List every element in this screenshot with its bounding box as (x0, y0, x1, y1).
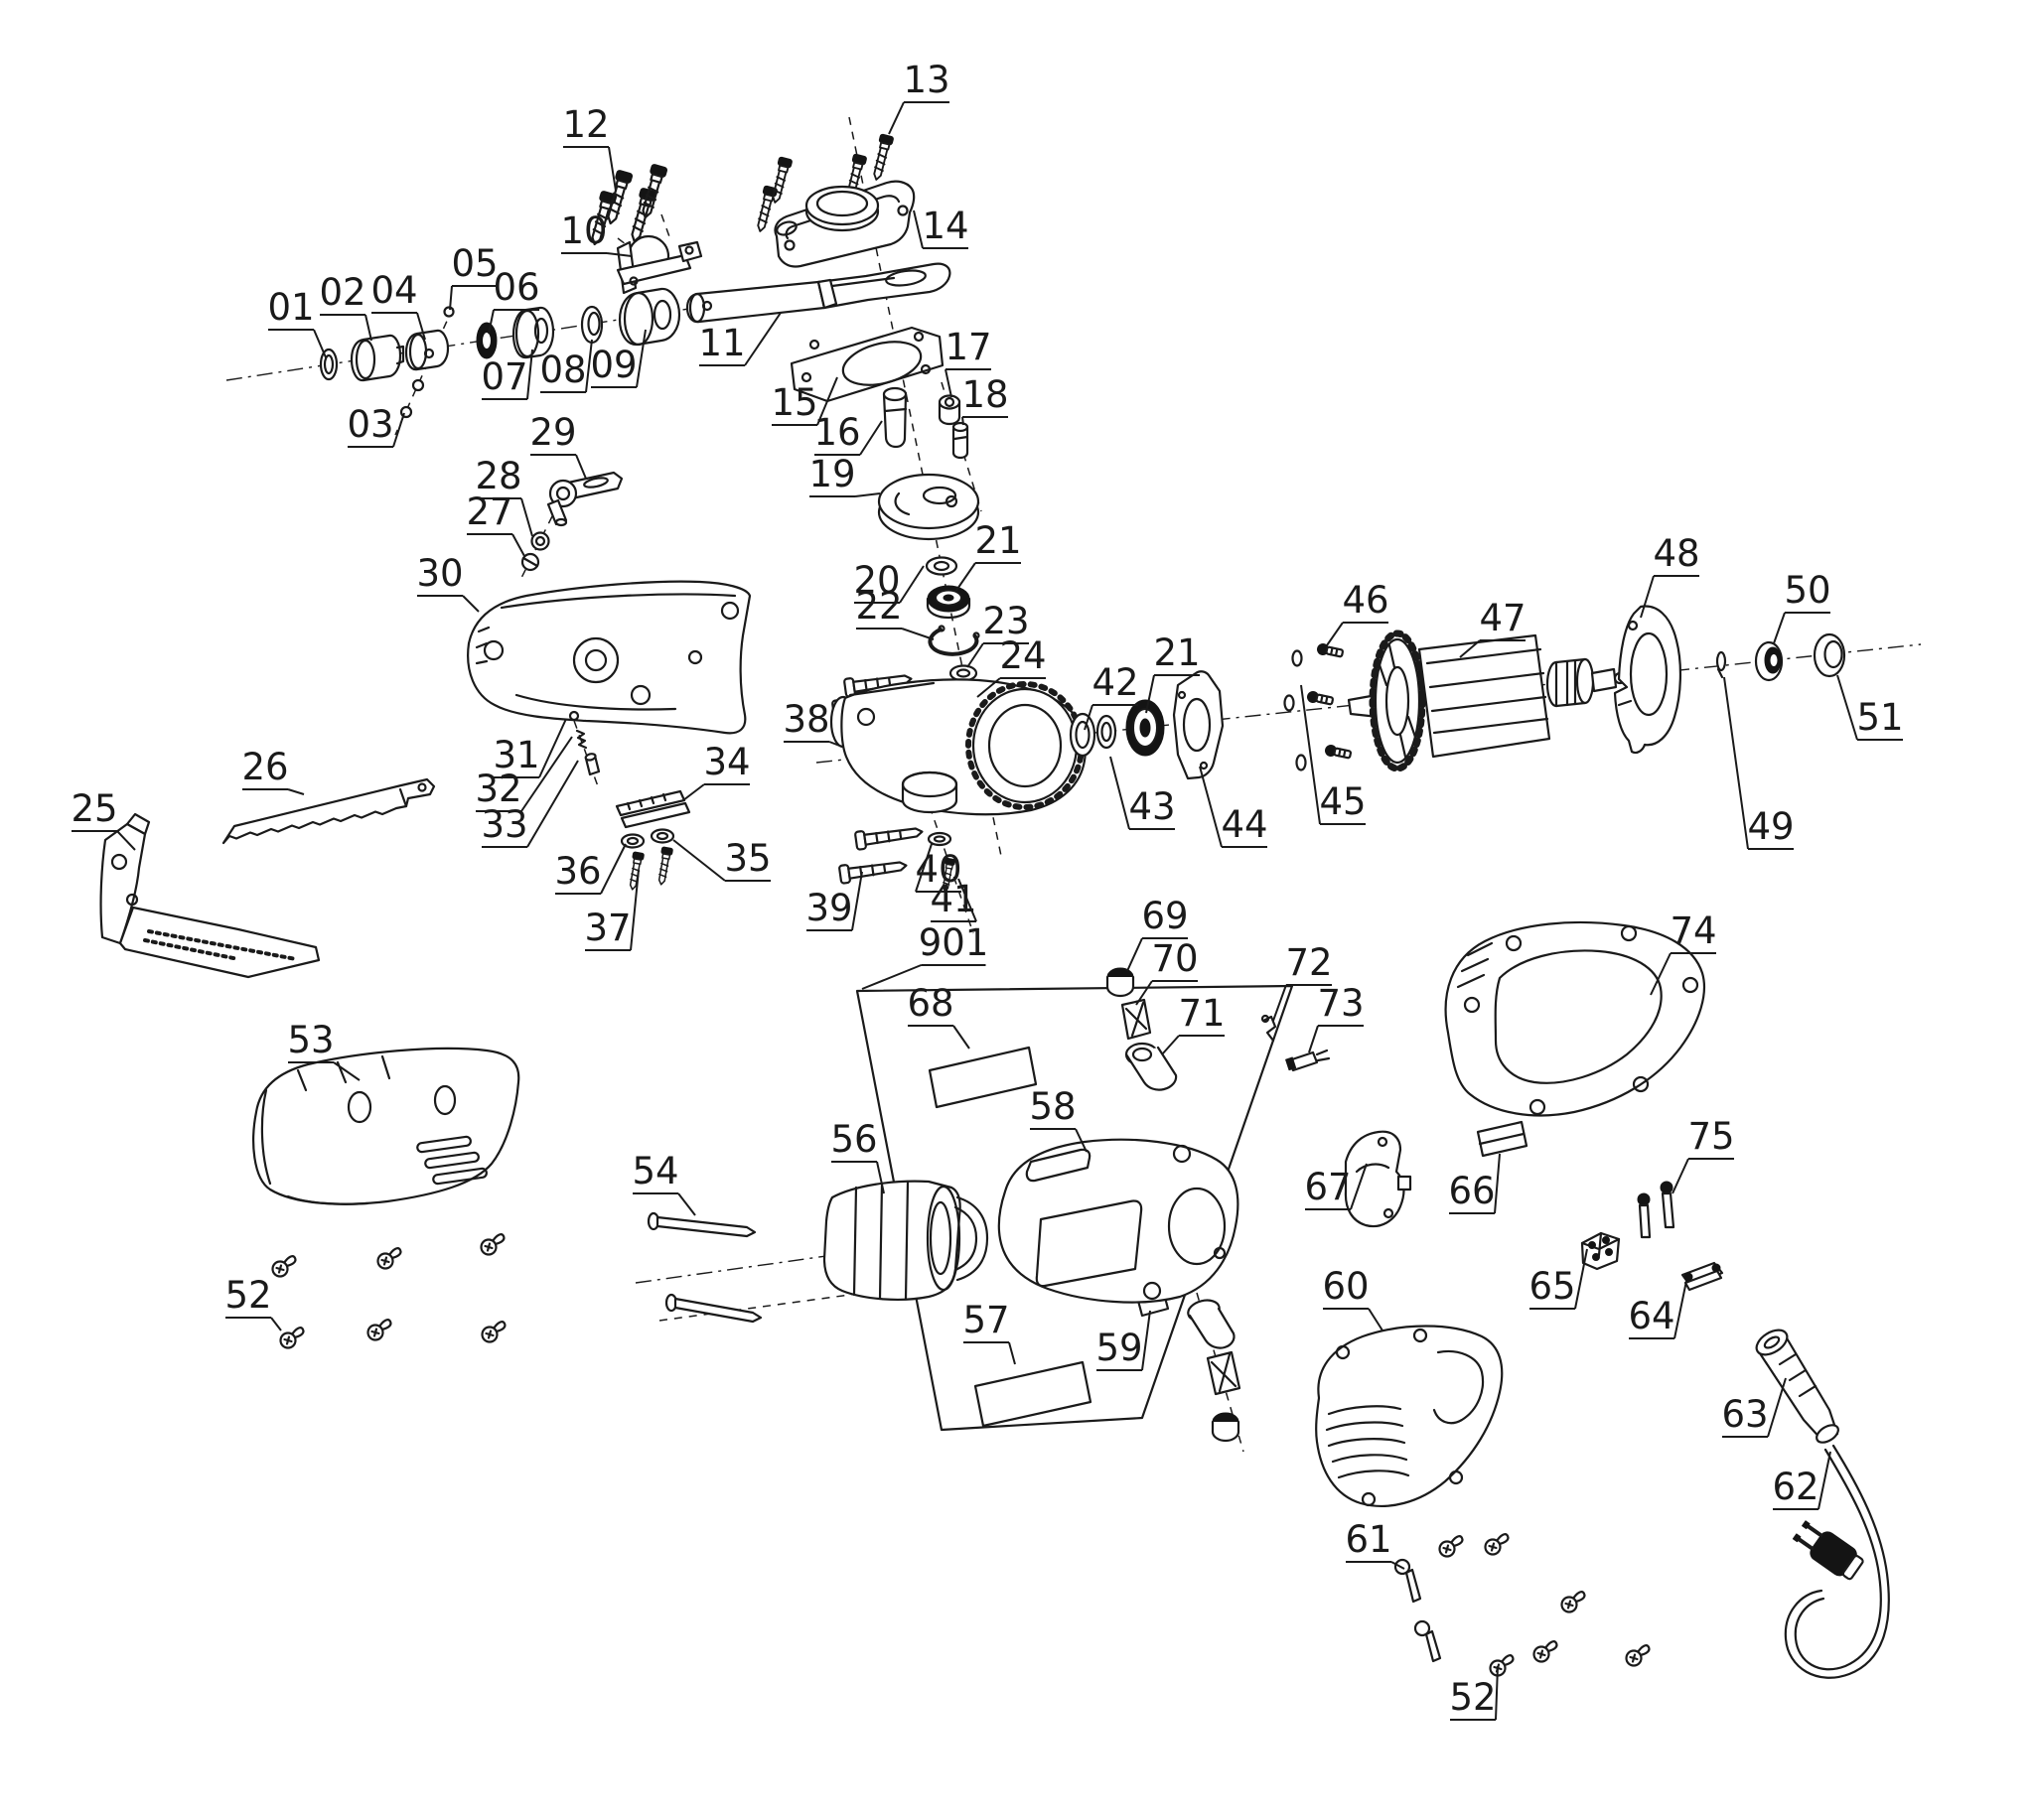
part-number-text: 01 (267, 286, 314, 329)
part-60-bottom-housing (1316, 1327, 1502, 1506)
leader-line (1327, 623, 1388, 645)
part-50-bearing (1756, 642, 1782, 680)
part-label-52: 52 (224, 1274, 281, 1330)
part-label-25: 25 (71, 787, 135, 850)
part-58-motor-housing (999, 1140, 1238, 1303)
part-number-text: 37 (584, 907, 631, 949)
leader-line (784, 742, 842, 747)
part-label-66: 66 (1448, 1154, 1500, 1213)
part-number-text: 59 (1095, 1327, 1142, 1369)
part-number-text: 24 (999, 634, 1046, 677)
part-27-washer (522, 554, 538, 570)
part-number-text: 25 (71, 787, 117, 830)
part-label-02: 02 (319, 271, 371, 341)
part-label-03: 03 (347, 403, 404, 447)
part-label-46: 46 (1327, 579, 1389, 645)
part-05-ball (445, 308, 454, 317)
part-number-text: 09 (590, 344, 637, 386)
part-49-clip (1717, 652, 1725, 677)
part-number-text: 08 (539, 349, 586, 391)
part-66-sticker (1478, 1122, 1527, 1156)
part-label-19: 19 (808, 453, 880, 496)
part-number-text: 66 (1448, 1170, 1495, 1212)
part-label-44: 44 (1200, 767, 1268, 847)
part-number-text: 68 (907, 982, 953, 1025)
part-25-shoe (101, 814, 319, 977)
leader-line (268, 330, 326, 357)
part-number-text: 03 (347, 403, 393, 446)
part-label-901: 901 (862, 921, 988, 989)
part-label-04: 04 (370, 269, 425, 340)
leader-line (530, 455, 586, 479)
part-number-text: 29 (529, 411, 576, 454)
part-label-14: 14 (914, 205, 969, 248)
part-label-43: 43 (1110, 757, 1176, 829)
part-number-text: 14 (922, 205, 968, 247)
part-number-text: 11 (698, 322, 745, 364)
part-label-27: 27 (466, 490, 524, 556)
part-number-text: 02 (319, 271, 365, 314)
part-callout-labels: 0102040506070809031012131411151617181920… (71, 59, 1903, 1720)
part-69-brush-cap (1107, 968, 1133, 996)
part-number-text: 16 (813, 411, 860, 454)
part-74-handle-housing (1446, 922, 1704, 1115)
part-label-30: 30 (416, 552, 479, 612)
part-number-text: 52 (1449, 1676, 1496, 1719)
part-brush-set-lower (1186, 1297, 1239, 1441)
part-number-text: 04 (370, 269, 417, 312)
part-14-bearing-cover (775, 182, 914, 267)
part-number-text: 57 (962, 1299, 1009, 1341)
part-70-carbon-brush (1122, 1000, 1150, 1039)
part-number-text: 13 (903, 59, 949, 101)
part-number-text: 15 (771, 381, 817, 424)
part-number-text: 47 (1479, 597, 1526, 639)
part-number-text: 46 (1342, 579, 1388, 622)
leader-line (563, 147, 616, 191)
part-08-ring (582, 307, 602, 343)
leader-line (962, 417, 1008, 425)
part-number-text: 27 (466, 490, 512, 533)
leader-line (955, 563, 1021, 592)
part-number-text: 60 (1322, 1265, 1369, 1308)
part-number-text: 41 (930, 878, 976, 920)
part-44-gasket (1174, 671, 1223, 778)
part-number-text: 22 (855, 585, 902, 628)
part-label-50: 50 (1774, 569, 1831, 643)
part-10-support-bracket (618, 236, 701, 293)
part-01-oring (321, 350, 337, 379)
part-number-text: 18 (961, 373, 1008, 416)
part-label-75: 75 (1672, 1115, 1735, 1193)
part-label-73: 73 (1309, 982, 1365, 1052)
part-38-gearbox-housing (831, 679, 1086, 814)
part-35-washer (652, 830, 673, 843)
leader-line (683, 784, 750, 800)
exploded-diagram-page: 0102040506070809031012131411151617181920… (0, 0, 2036, 1820)
part-03-pins (401, 380, 423, 417)
part-37-screws (627, 847, 673, 891)
part-43-washer (1097, 716, 1115, 748)
part-33-pin (585, 753, 599, 774)
leader-line (889, 102, 949, 134)
part-number-text: 42 (1091, 661, 1138, 704)
part-28-washer (532, 533, 549, 550)
part-label-01: 01 (267, 286, 326, 357)
leader-line (856, 629, 934, 639)
part-16-crank-pin (884, 388, 906, 447)
part-label-52b: 52 (1449, 1666, 1498, 1720)
part-number-text: 35 (724, 837, 771, 880)
leader-line (320, 315, 371, 341)
part-23-washer (950, 666, 976, 681)
part-label-13: 13 (889, 59, 950, 134)
part-label-63: 63 (1721, 1378, 1786, 1437)
part-number-text: 43 (1128, 785, 1175, 828)
part-11-piston-rod (687, 264, 949, 322)
part-31-ball (570, 712, 578, 720)
part-number-text: 07 (481, 355, 527, 398)
part-32-spring (577, 731, 586, 748)
part-number-text: 65 (1528, 1265, 1575, 1308)
part-number-text: 63 (1721, 1393, 1768, 1436)
part-29-crank-lever (548, 473, 622, 525)
part-number-text: 49 (1747, 805, 1794, 848)
part-number-text: 64 (1628, 1295, 1674, 1337)
part-label-60: 60 (1322, 1265, 1382, 1330)
part-number-text: 75 (1687, 1115, 1734, 1158)
part-number-text: 58 (1029, 1085, 1076, 1128)
part-30-gear-housing (468, 582, 750, 734)
part-number-text: 74 (1670, 910, 1716, 952)
leader-line (467, 534, 524, 556)
leader-line (417, 596, 479, 612)
part-51-ring (1815, 634, 1844, 676)
part-73-terminal (1286, 1050, 1329, 1070)
part-label-54: 54 (632, 1150, 695, 1215)
part-42-seal (1071, 714, 1094, 756)
part-number-text: 52 (224, 1274, 271, 1317)
part-34-clamp-plates (617, 791, 689, 827)
part-number-text: 38 (783, 698, 829, 741)
part-label-26: 26 (241, 746, 304, 794)
part-label-05: 05 (450, 242, 499, 310)
part-number-text: 33 (481, 803, 527, 846)
part-label-34: 34 (683, 741, 751, 800)
part-number-text: 61 (1345, 1518, 1391, 1561)
part-number-text: 54 (632, 1150, 678, 1192)
part-21-bearing (928, 586, 969, 618)
part-label-22: 22 (855, 585, 934, 639)
exploded-diagram-canvas: 0102040506070809031012131411151617181920… (0, 0, 2036, 1820)
part-number-text: 53 (287, 1019, 334, 1061)
leader-line (633, 1193, 695, 1215)
part-label-41: 41 (930, 878, 976, 921)
part-label-64: 64 (1628, 1281, 1686, 1338)
leader-line (450, 286, 498, 310)
part-label-51: 51 (1837, 675, 1904, 740)
part-02-piston-cup (352, 336, 403, 380)
part-45-screws (1297, 744, 1352, 770)
part-number-text: 36 (554, 850, 601, 893)
part-number-text: 26 (241, 746, 288, 788)
part-number-text: 44 (1221, 803, 1267, 846)
part-label-48: 48 (1641, 532, 1700, 618)
part-40-washer (929, 833, 950, 845)
part-label-36: 36 (554, 844, 626, 894)
part-67-switch (1346, 1132, 1410, 1226)
part-number-text: 72 (1285, 941, 1332, 984)
part-19-crank-pulley (879, 475, 978, 539)
part-number-text: 901 (919, 921, 989, 964)
part-64-cable-clamp (1682, 1263, 1722, 1290)
part-number-text: 67 (1304, 1166, 1351, 1208)
part-number-text: 70 (1151, 937, 1198, 980)
part-48-fan-baffle (1615, 607, 1680, 753)
part-number-text: 17 (945, 326, 991, 368)
power-plug (1791, 1517, 1867, 1584)
part-label-07: 07 (481, 350, 532, 399)
leader-line (225, 1318, 281, 1330)
part-21-bearing-right (1126, 700, 1164, 756)
part-number-text: 10 (560, 210, 607, 252)
leader-line (1309, 1026, 1364, 1052)
part-09-bearing (620, 289, 679, 345)
part-number-text: 73 (1317, 982, 1364, 1025)
leader-line (242, 789, 304, 794)
part-number-text: 62 (1772, 1466, 1818, 1508)
part-number-text: 56 (830, 1118, 877, 1161)
part-75-screws (1638, 1182, 1673, 1237)
leader-line (1323, 1309, 1382, 1330)
part-label-29: 29 (529, 411, 586, 479)
part-54-long-screws (649, 1213, 761, 1322)
part-label-35: 35 (673, 837, 772, 881)
part-number-text: 06 (493, 266, 539, 309)
part-label-12: 12 (562, 103, 616, 191)
part-label-65: 65 (1528, 1249, 1587, 1309)
part-number-text: 34 (703, 741, 750, 783)
part-52-screws-left (273, 1234, 506, 1347)
part-number-text: 51 (1856, 696, 1903, 739)
part-label-49: 49 (1724, 677, 1795, 849)
leader-line (1672, 1159, 1734, 1193)
part-04-crank-block (406, 331, 448, 369)
part-number-text: 69 (1141, 895, 1188, 937)
part-label-18: 18 (961, 373, 1008, 425)
part-label-61: 61 (1345, 1518, 1404, 1569)
part-number-text: 21 (1153, 631, 1200, 674)
part-number-text: 30 (416, 552, 463, 595)
part-label-39: 39 (805, 872, 862, 930)
part-17-spacer (940, 396, 959, 425)
part-52-screws-right (1440, 1534, 1650, 1675)
part-46-screws (1285, 642, 1344, 710)
part-label-62: 62 (1772, 1452, 1830, 1509)
part-number-text: 19 (808, 453, 855, 495)
part-number-text: 12 (562, 103, 609, 146)
part-number-text: 48 (1653, 532, 1699, 575)
part-61-screws (1395, 1560, 1440, 1661)
part-53-front-housing (253, 1049, 518, 1204)
part-number-text: 05 (451, 242, 498, 285)
part-20-washer (927, 558, 956, 575)
part-06-oring (477, 323, 497, 358)
part-label-56: 56 (830, 1118, 884, 1193)
part-number-text: 39 (805, 887, 852, 929)
part-18-pin (953, 423, 967, 458)
part-47-armature (1349, 633, 1625, 769)
part-label-16: 16 (813, 411, 882, 455)
part-number-text: 45 (1319, 780, 1366, 823)
part-number-text: 71 (1178, 992, 1225, 1035)
part-number-text: 50 (1784, 569, 1830, 612)
part-number-text: 21 (974, 519, 1021, 562)
